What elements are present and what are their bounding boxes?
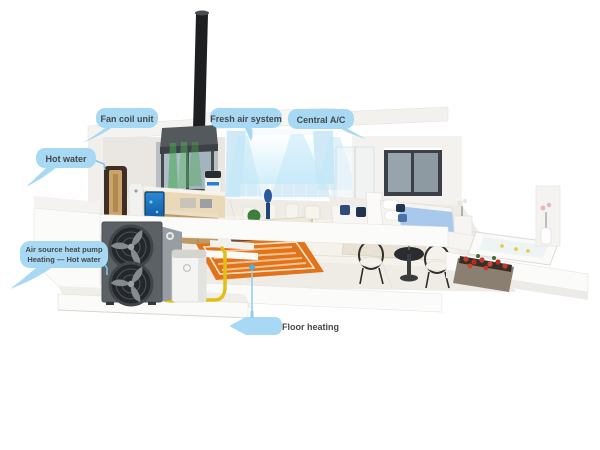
water-tank — [172, 250, 206, 302]
callout-fan-coil-label: Fan coil unit — [101, 114, 154, 124]
roof-duct — [193, 11, 209, 131]
callout-heat-pump-label-2: Heating — Hot water — [27, 255, 100, 264]
terrace-column — [536, 186, 560, 246]
house-cutaway-illustration: Fan coil unit Fresh air system Central A… — [0, 0, 600, 450]
fan-icon — [110, 263, 152, 305]
hot-water-cabinet — [104, 166, 127, 218]
screenshot-root: Fan coil unit Fresh air system Central A… — [0, 0, 600, 450]
callout-heat-pump-label-1: Air source heat pump — [25, 245, 103, 254]
callout-hot-water-label: Hot water — [45, 154, 87, 164]
fresh-air-ceiling-unit — [160, 125, 218, 154]
callout-hot-water: Hot water — [26, 148, 96, 187]
water-purifier — [129, 183, 143, 218]
outdoor-heat-pump-unit — [102, 222, 182, 305]
callout-fresh-air-label: Fresh air system — [210, 114, 282, 124]
callout-floor-heating-label: Floor heating — [282, 322, 339, 332]
callout-central-ac-label: Central A/C — [297, 115, 346, 125]
